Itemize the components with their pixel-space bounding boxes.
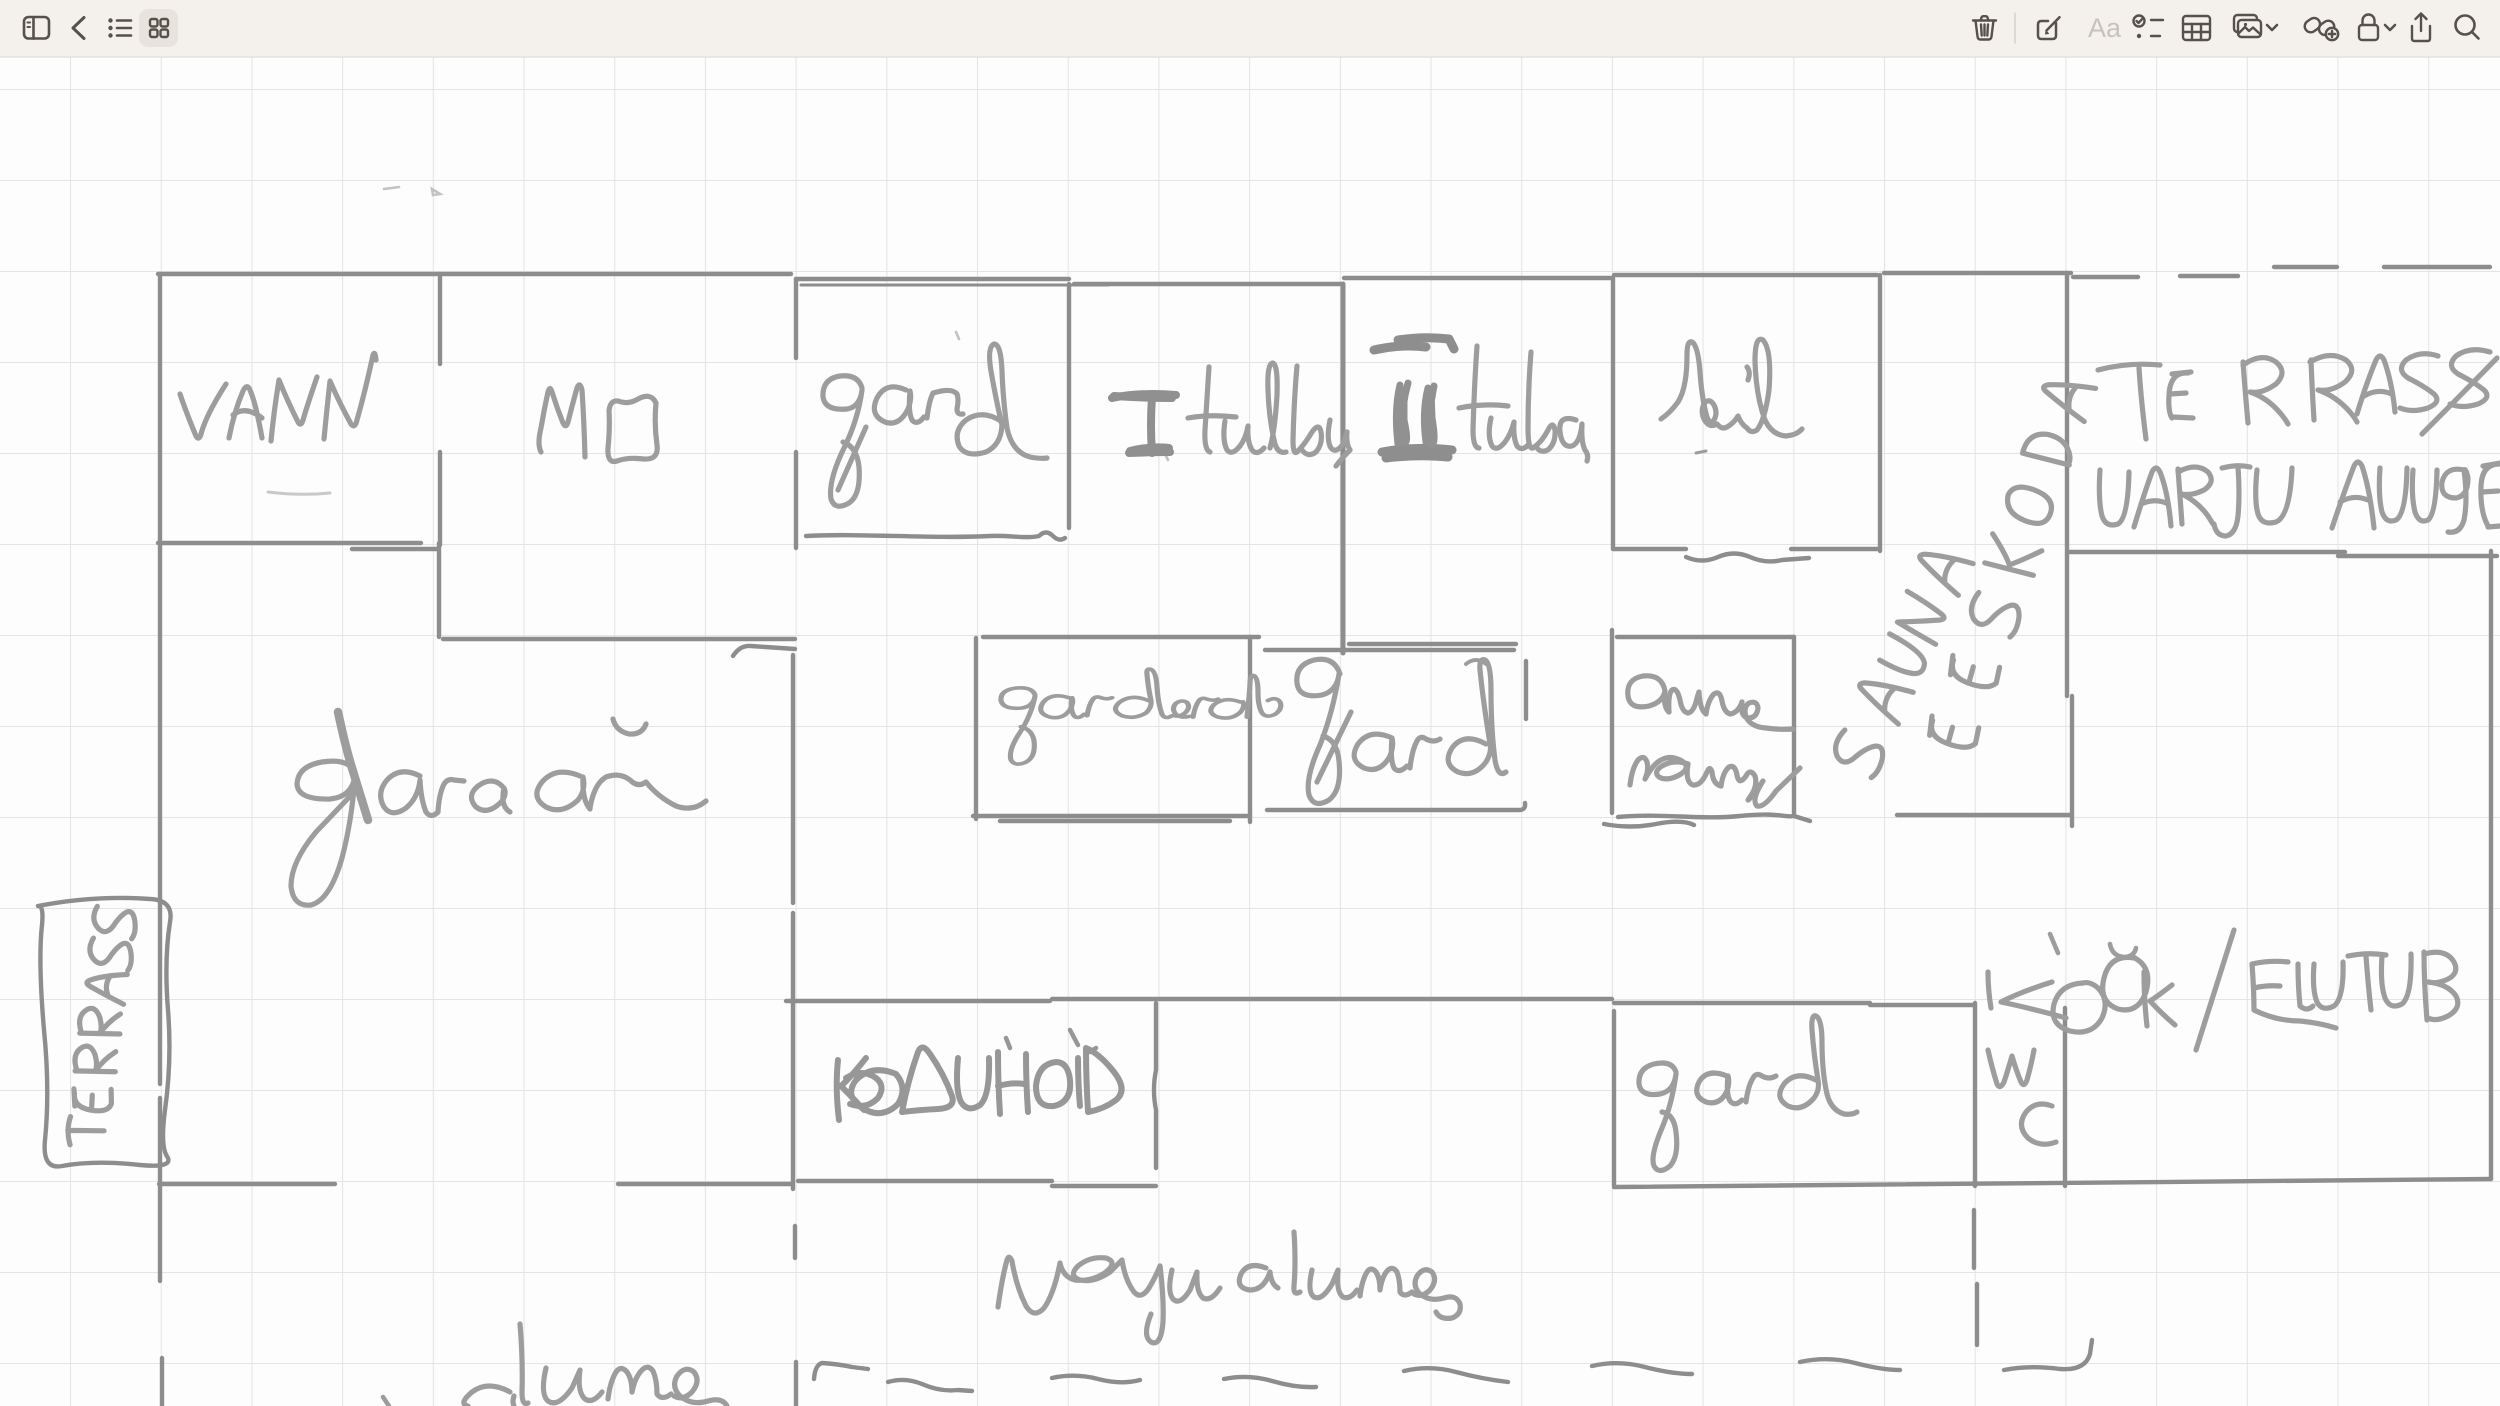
svg-text:Aa: Aa	[2088, 13, 2122, 43]
